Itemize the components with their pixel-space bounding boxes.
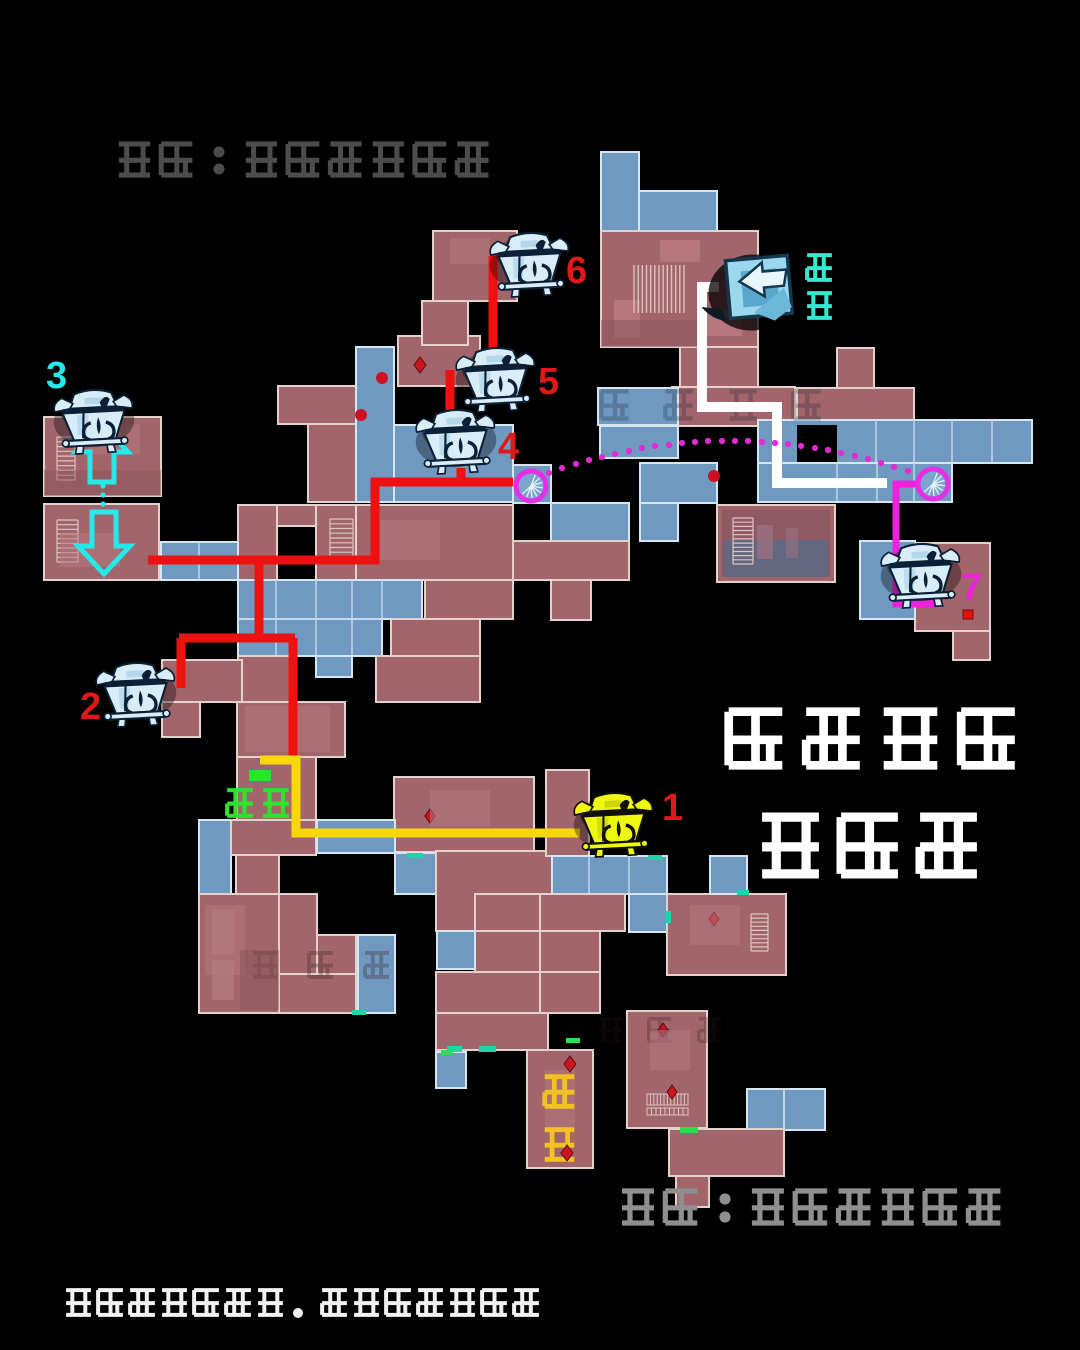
svg-text:3: 3 xyxy=(46,355,67,397)
svg-text:4: 4 xyxy=(498,426,519,468)
svg-text:6: 6 xyxy=(566,250,587,292)
svg-text:7: 7 xyxy=(961,567,982,609)
svg-text:2: 2 xyxy=(80,686,101,728)
svg-text:1: 1 xyxy=(662,787,683,829)
svg-text:5: 5 xyxy=(538,361,559,403)
